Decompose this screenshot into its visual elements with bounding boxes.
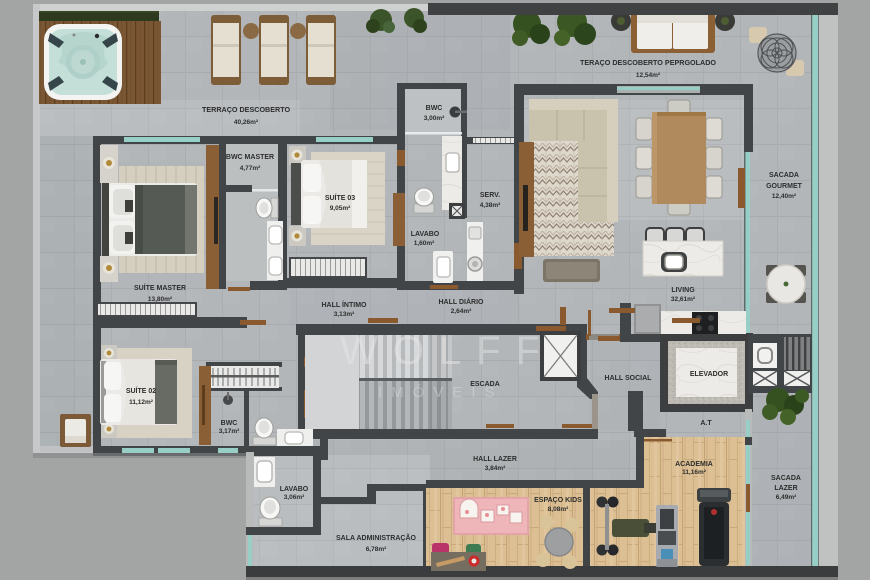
svg-text:3,17m²: 3,17m² (219, 428, 240, 435)
svg-text:32,61m²: 32,61m² (671, 296, 696, 303)
svg-text:13,80m²: 13,80m² (148, 296, 173, 303)
svg-text:SALA ADMINISTRAÇÃO: SALA ADMINISTRAÇÃO (336, 533, 417, 542)
svg-text:4,77m²: 4,77m² (240, 165, 261, 172)
svg-text:GOURMET: GOURMET (766, 183, 803, 190)
svg-text:BWC MASTER: BWC MASTER (226, 154, 274, 161)
svg-text:SUÍTE 02: SUÍTE 02 (126, 386, 156, 395)
svg-text:3,00m²: 3,00m² (424, 115, 445, 122)
svg-text:A.T: A.T (700, 420, 712, 427)
svg-text:HALL ÍNTIMO: HALL ÍNTIMO (322, 300, 368, 309)
svg-text:LIVING: LIVING (671, 287, 695, 294)
svg-text:6,49m²: 6,49m² (776, 494, 797, 501)
svg-text:SACADA: SACADA (769, 172, 799, 179)
svg-text:11,16m²: 11,16m² (682, 469, 707, 476)
svg-text:LAVABO: LAVABO (280, 486, 309, 493)
svg-text:WOLFF: WOLFF (340, 329, 555, 373)
svg-text:12,54m²: 12,54m² (636, 72, 661, 79)
svg-text:ESCADA: ESCADA (470, 381, 500, 388)
svg-text:3,06m²: 3,06m² (284, 494, 305, 501)
svg-text:SERV.: SERV. (480, 192, 500, 199)
svg-text:8,08m²: 8,08m² (548, 506, 569, 513)
svg-text:HALL DIÁRIO: HALL DIÁRIO (439, 297, 485, 306)
svg-text:BWC: BWC (221, 420, 238, 427)
svg-text:LAVABO: LAVABO (411, 231, 440, 238)
svg-text:3,13m²: 3,13m² (334, 311, 355, 318)
svg-text:ACADEMIA: ACADEMIA (675, 461, 713, 468)
svg-text:3,84m²: 3,84m² (485, 465, 506, 472)
svg-text:12,40m²: 12,40m² (772, 193, 797, 200)
svg-text:TERAÇO DESCOBERTO PEPRGOLADO: TERAÇO DESCOBERTO PEPRGOLADO (580, 58, 716, 67)
svg-text:SACADA: SACADA (771, 475, 801, 482)
svg-text:9,05m²: 9,05m² (330, 205, 351, 212)
svg-text:1,60m²: 1,60m² (414, 240, 435, 247)
svg-text:40,26m²: 40,26m² (234, 119, 259, 126)
svg-text:SUÍTE MASTER: SUÍTE MASTER (134, 283, 186, 292)
svg-text:HALL SOCIAL: HALL SOCIAL (605, 375, 653, 382)
svg-text:LAZER: LAZER (774, 485, 797, 492)
svg-text:SUÍTE 03: SUÍTE 03 (325, 193, 355, 202)
svg-text:BWC: BWC (426, 105, 443, 112)
svg-text:HALL LAZER: HALL LAZER (473, 456, 517, 463)
svg-text:ELEVADOR: ELEVADOR (690, 371, 728, 378)
svg-text:ESPAÇO KIDS: ESPAÇO KIDS (534, 497, 582, 504)
svg-text:4,38m²: 4,38m² (480, 202, 501, 209)
svg-text:TERRAÇO DESCOBERTO: TERRAÇO DESCOBERTO (202, 105, 291, 114)
svg-text:6,78m²: 6,78m² (366, 546, 387, 553)
svg-text:2,64m²: 2,64m² (451, 308, 472, 315)
svg-text:11,12m²: 11,12m² (129, 399, 154, 406)
